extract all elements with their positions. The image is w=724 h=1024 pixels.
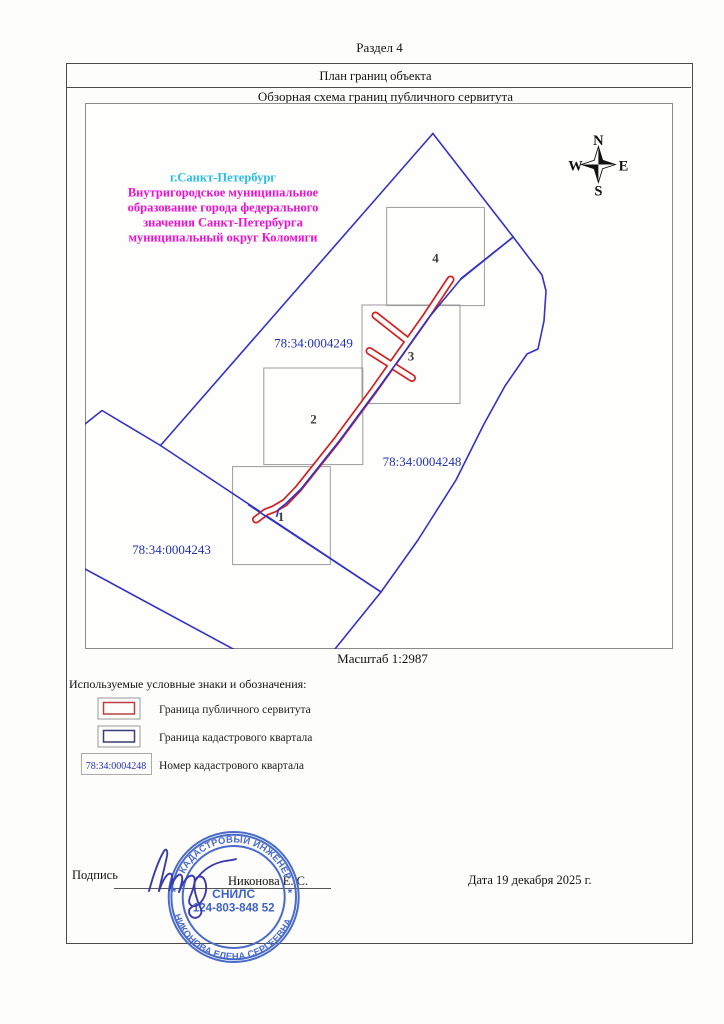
- svg-text:1: 1: [278, 509, 285, 524]
- svg-text:Граница публичного сервитута: Граница публичного сервитута: [159, 704, 311, 716]
- svg-text:Граница кадастрового квартала: Граница кадастрового квартала: [159, 732, 312, 744]
- svg-text:S: S: [594, 184, 602, 200]
- svg-text:значения Санкт-Петербурга: значения Санкт-Петербурга: [143, 216, 303, 230]
- svg-text:E: E: [619, 159, 629, 175]
- svg-text:78:34:0004248: 78:34:0004248: [86, 761, 147, 772]
- svg-text:78:34:0004243: 78:34:0004243: [132, 542, 211, 557]
- svg-text:образование города федеральног: образование города федерального: [128, 201, 319, 215]
- svg-text:W: W: [568, 159, 583, 175]
- svg-text:2: 2: [310, 412, 317, 427]
- svg-text:4: 4: [432, 251, 439, 266]
- svg-text:г.Санкт-Петербург: г.Санкт-Петербург: [170, 171, 276, 185]
- svg-text:*: *: [288, 886, 293, 900]
- svg-text:78:34:0004248: 78:34:0004248: [383, 454, 462, 469]
- svg-text:78:34:0004249: 78:34:0004249: [274, 336, 353, 351]
- svg-text:Номер кадастрового квартала: Номер кадастрового квартала: [159, 760, 304, 772]
- svg-text:N: N: [593, 133, 604, 149]
- svg-text:Внутригородское муниципальное: Внутригородское муниципальное: [128, 186, 319, 200]
- svg-text:муниципальный округ Коломяги: муниципальный округ Коломяги: [128, 231, 317, 245]
- svg-text:3: 3: [408, 349, 415, 364]
